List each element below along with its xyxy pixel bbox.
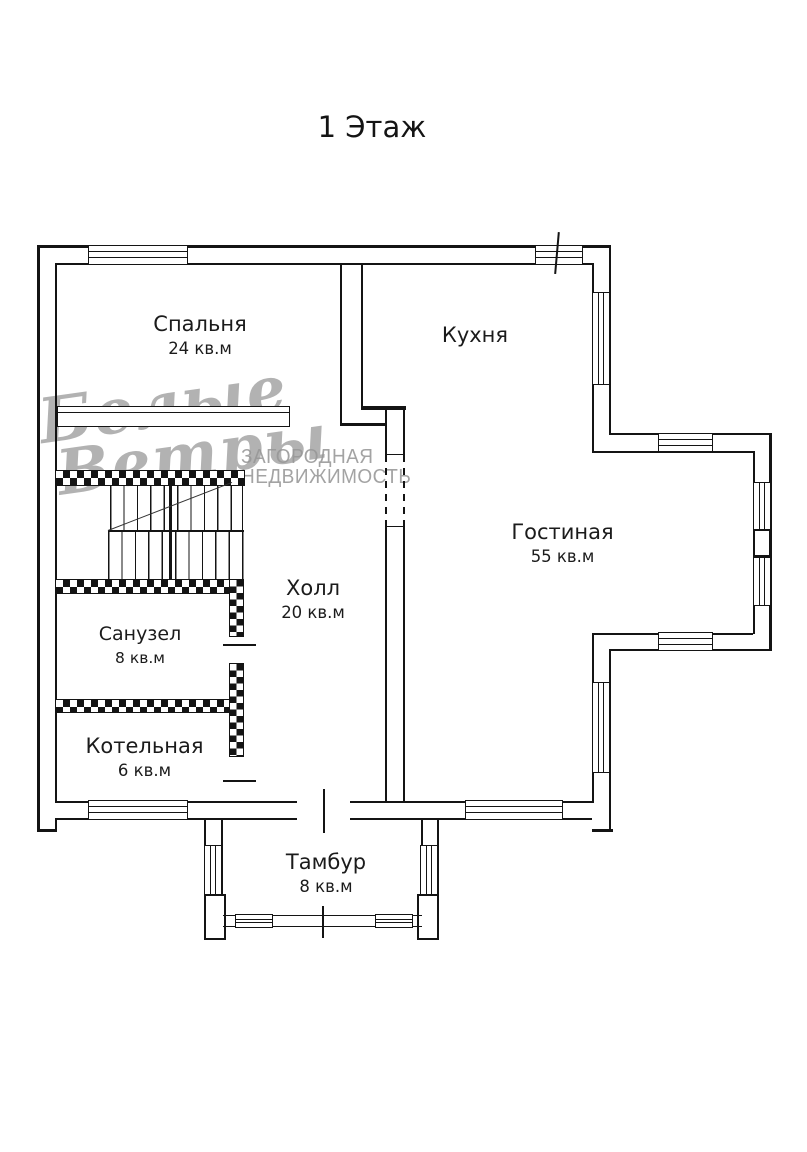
outer-wall-right-foot-step [609,818,611,831]
closet-shelf-line [58,412,289,413]
window [88,800,188,820]
stair-treads-lower [108,532,244,579]
window [465,800,563,820]
room-area: 55 кв.м [485,548,640,567]
opening-rung [385,454,405,455]
partition-hall-living [385,527,387,803]
pier [204,894,226,940]
dashed-opening [385,455,387,527]
room-label-living-room: Гостиная 55 кв.м [485,520,640,567]
room-name: Кухня [405,323,545,347]
room-area: 8 кв.м [262,878,390,897]
page-title: 1 Этаж [272,110,472,144]
door-opening-tick [323,789,325,833]
dashed-opening [403,455,405,527]
partition-hall-living [403,406,405,455]
kitchen-stub-wall [361,406,406,410]
window [375,914,413,928]
window [204,845,222,896]
room-area: 20 кв.м [248,604,378,623]
door-opening-tick [223,780,256,782]
window [753,557,771,606]
room-label-bedroom: Спальня 24 кв.м [110,312,290,359]
partition-bedroom-kitchen [361,263,363,408]
room-label-kitchen: Кухня [405,323,545,347]
window [88,245,188,265]
bay-wall-right-inner [753,451,755,634]
room-label-boiler-room: Котельная 6 кв.м [72,734,217,781]
window [658,632,713,651]
room-name: Спальня [110,312,290,336]
room-area: 24 кв.м [110,340,290,359]
window [535,245,583,265]
checkered-wall [55,470,245,486]
inner-wall-left [55,263,57,803]
room-name: Санузел [80,624,200,646]
window [592,292,610,385]
partition-hall-living [385,406,387,455]
outer-wall-left-foot [37,829,57,832]
room-label-bathroom: Санузел 8 кв.м [80,624,200,668]
checkered-wall [229,663,244,757]
room-name: Холл [248,576,378,600]
room-name: Котельная [72,734,217,758]
window [420,845,438,896]
window [658,433,713,452]
room-area: 8 кв.м [80,650,200,668]
stair-right-edge [242,486,243,580]
door-opening-tick [223,644,256,646]
room-area: 6 кв.м [72,762,217,781]
checkered-wall [55,579,230,594]
pier [417,894,439,940]
window [592,682,610,773]
window [753,482,771,530]
stair-string-line [169,486,172,579]
checkered-wall [55,699,230,713]
window [235,914,273,928]
checkered-wall [229,579,244,637]
outer-wall-left [37,245,40,832]
partition-bedroom-kitchen [340,263,342,425]
closet [57,406,290,427]
room-label-hall: Холл 20 кв.м [248,576,378,623]
opening-rung [385,526,405,527]
hall-step-wall [340,423,386,426]
room-name: Гостиная [485,520,640,544]
entrance-door-tick [322,906,324,938]
stair-treads-upper [110,486,243,530]
room-label-vestibule: Тамбур 8 кв.м [262,850,390,897]
bay-wall-right-outer [769,433,772,651]
floor-plan: Белые Ветры ЗАГОРОДНАЯ НЕДВИЖИМОСТЬ 1 Эт… [0,0,807,1152]
partition-hall-living [403,527,405,803]
room-name: Тамбур [262,850,390,874]
